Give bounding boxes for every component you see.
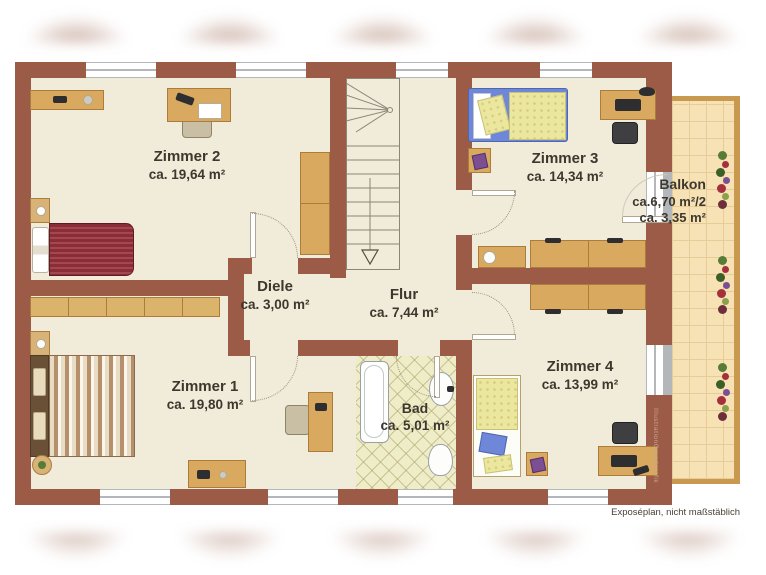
pillow-icon — [33, 368, 46, 396]
room-name: Zimmer 4 — [510, 358, 650, 377]
desk-icon — [167, 88, 231, 122]
window-icon — [540, 62, 592, 78]
double-bed-icon — [49, 355, 135, 457]
nightstand-icon — [526, 452, 548, 476]
flower-box-icon — [718, 256, 727, 265]
room-area: ca. 19,64 m² — [117, 167, 257, 184]
room-label-bad: Bad ca. 5,01 m² — [355, 400, 475, 434]
room-area: ca. 5,01 m² — [355, 418, 475, 435]
wall-right — [646, 62, 672, 505]
room-label-flur: Flur ca. 7,44 m² — [344, 286, 464, 322]
office-chair-icon — [612, 122, 638, 144]
toilet-icon — [428, 444, 453, 476]
bedside-shelf-icon — [30, 198, 50, 223]
single-bed-icon — [49, 223, 134, 276]
room-area: ca.6,70 m²/2 — [586, 194, 706, 210]
bedside-shelf-icon — [30, 331, 50, 356]
desk-icon — [308, 392, 333, 452]
sideboard-icon — [530, 240, 646, 268]
sideboard-icon — [530, 284, 646, 310]
room-area: ca. 3,00 m² — [215, 297, 335, 314]
floor-plan: Zimmer 2 ca. 19,64 m² Zimmer 3 ca. 14,34… — [0, 0, 766, 574]
room-label-zimmer2: Zimmer 2 ca. 19,64 m² — [117, 148, 257, 184]
plant-icon — [32, 455, 52, 475]
pillow-icon — [32, 227, 49, 273]
wardrobe-icon — [30, 297, 220, 317]
window-icon — [100, 489, 170, 505]
room-name: Flur — [344, 286, 464, 305]
room-label-zimmer4: Zimmer 4 ca. 13,99 m² — [510, 358, 650, 394]
room-area: ca. 3,35 m² — [586, 210, 706, 226]
wardrobe-icon — [300, 152, 330, 255]
room-name: Zimmer 2 — [117, 148, 257, 167]
pillow-icon — [33, 412, 46, 440]
room-label-balkon: Balkon ca.6,70 m²/2 ca. 3,35 m² — [586, 176, 706, 226]
room-name: Zimmer 3 — [495, 150, 635, 169]
illustrator-watermark: IllustrationGrundgrafik — [652, 408, 659, 488]
wall-stairwell-west — [330, 78, 346, 278]
room-name: Zimmer 1 — [135, 378, 275, 397]
wall-zimmer3-zimmer4 — [472, 268, 646, 284]
room-label-zimmer1: Zimmer 1 ca. 19,80 m² — [135, 378, 275, 414]
exposé-page: Zimmer 2 ca. 19,64 m² Zimmer 3 ca. 14,34… — [0, 0, 766, 574]
desk-icon — [600, 90, 656, 120]
room-name: Diele — [215, 278, 335, 297]
office-chair-icon — [612, 422, 638, 444]
wall-south-corridor-b — [298, 340, 398, 356]
single-bed-icon — [468, 88, 568, 142]
hall-table-icon — [478, 246, 526, 268]
room-area: ca. 19,80 m² — [135, 397, 275, 414]
room-area: ca. 13,99 m² — [510, 377, 650, 394]
balcony-area — [672, 96, 740, 484]
room-name: Bad — [355, 400, 475, 418]
wall-zimmer2-diele-b — [298, 258, 346, 274]
flower-box-icon — [718, 151, 727, 160]
wall-flur-east — [456, 235, 472, 290]
scale-disclaimer: Exposéplan, nicht maßstäblich — [440, 507, 740, 518]
window-icon — [236, 62, 306, 78]
wall-south-corridor-a — [228, 340, 250, 356]
room-label-diele: Diele ca. 3,00 m² — [215, 278, 335, 314]
stairs-icon — [346, 78, 400, 270]
wall-south-corridor-c — [440, 340, 472, 356]
flower-box-icon — [718, 363, 727, 372]
nightstand-icon — [468, 148, 491, 173]
room-area: ca. 7,44 m² — [344, 305, 464, 322]
window-icon — [86, 62, 156, 78]
wall-zimmer2-zimmer1 — [15, 280, 244, 296]
window-icon — [548, 489, 608, 505]
window-icon — [396, 62, 448, 78]
room-name: Balkon — [586, 176, 706, 194]
sideboard-icon — [188, 460, 246, 488]
desk-icon — [598, 446, 658, 476]
window-icon — [398, 489, 453, 505]
window-icon — [268, 489, 338, 505]
chair-icon — [285, 405, 310, 435]
shelf-icon — [30, 90, 104, 110]
